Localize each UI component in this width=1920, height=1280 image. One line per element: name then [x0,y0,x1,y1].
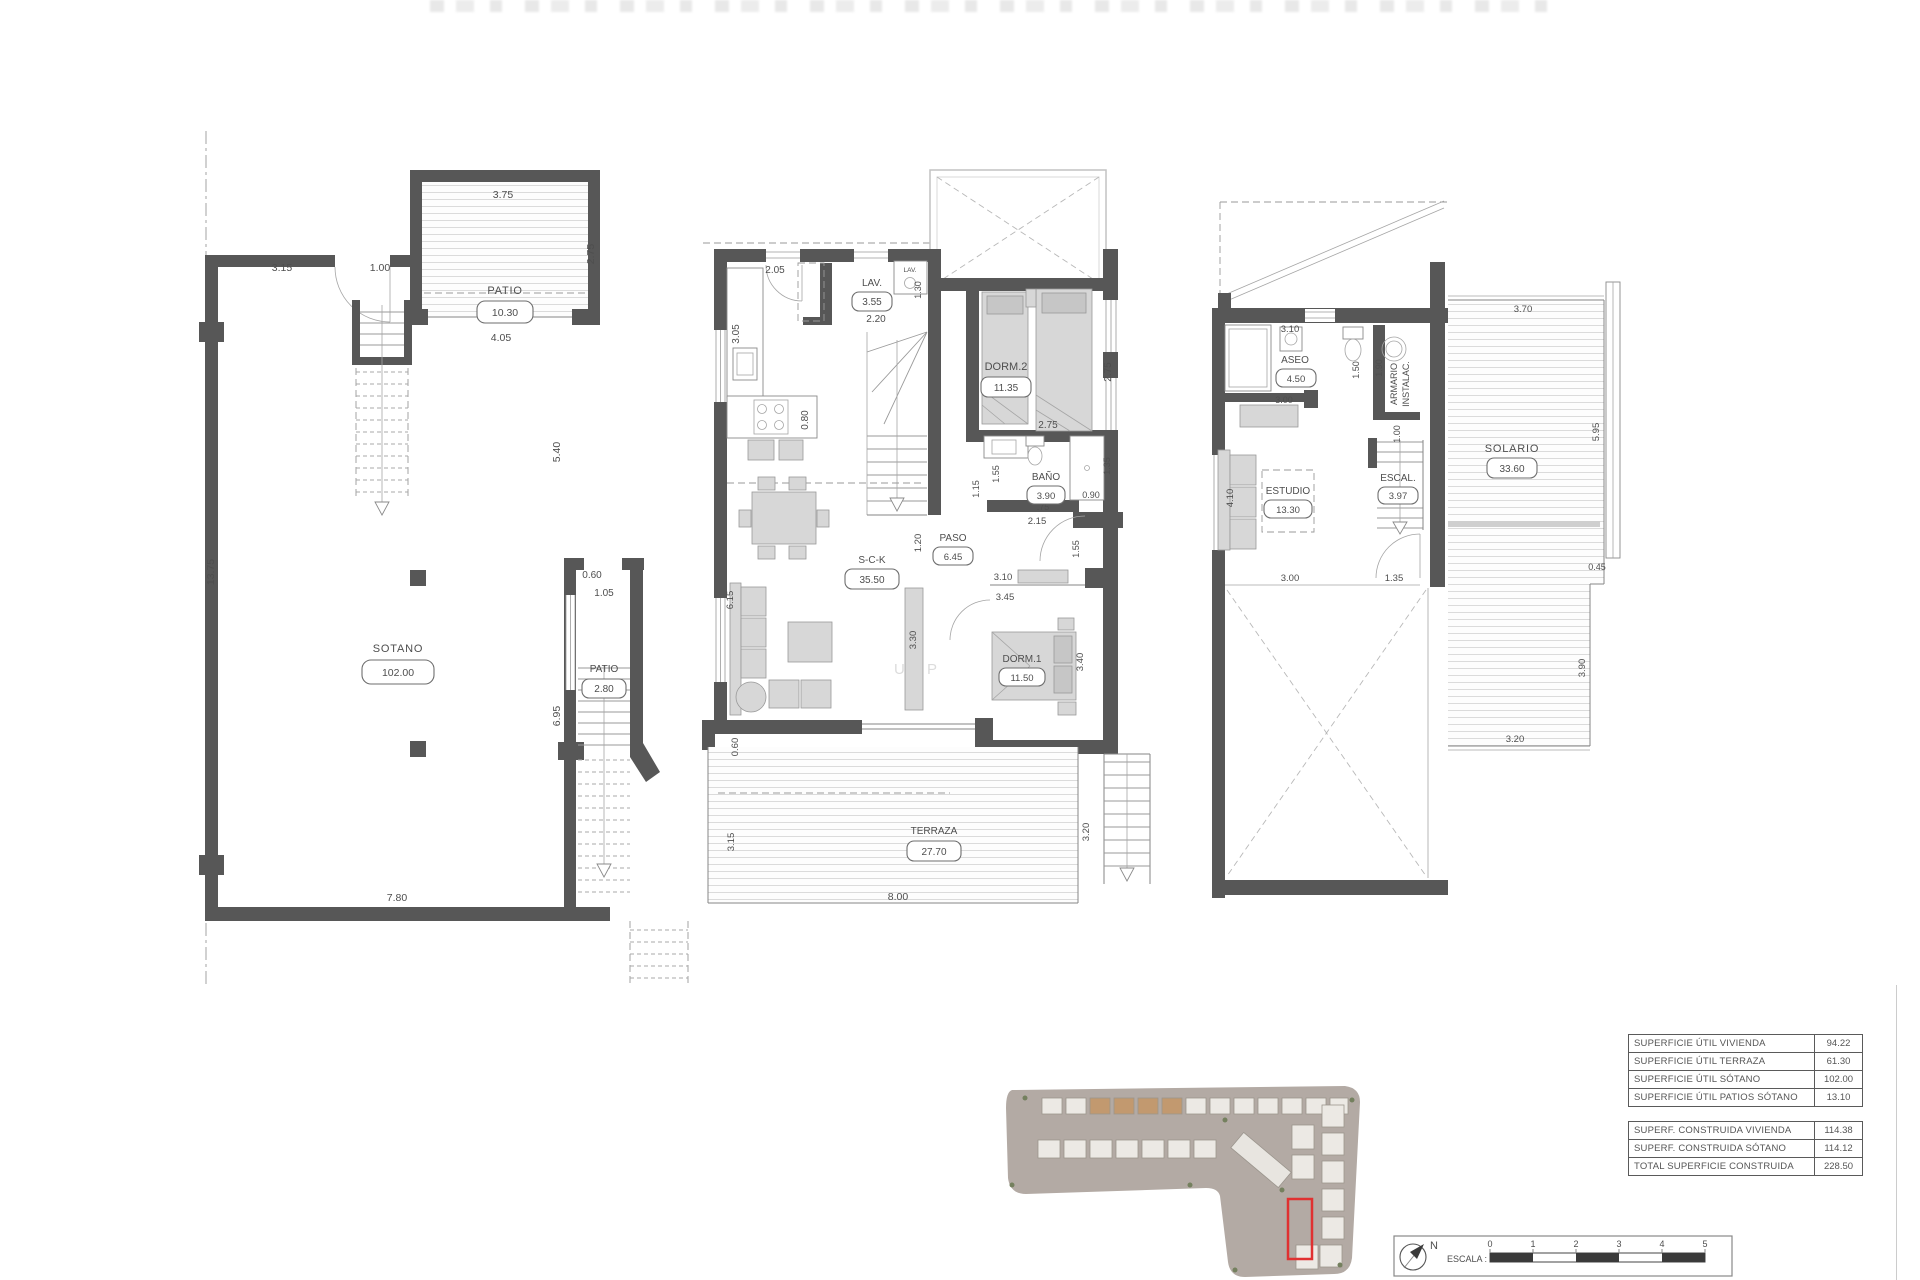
table-row: SUPERF. CONSTRUIDA VIVIENDA114.38 [1629,1122,1862,1140]
north-label: N [1430,1240,1438,1252]
room-label: TERRAZA [911,826,958,837]
desk [1240,405,1298,427]
table-cell-value: 61.30 [1814,1053,1862,1070]
dim-label: 3.15 [272,262,293,274]
table-row: SUPERF. CONSTRUIDA SÓTANO114.12 [1629,1140,1862,1158]
room-label: PASO [939,533,966,544]
table-cell-value: 228.50 [1814,1158,1862,1175]
dim-label: 3.10 [1281,324,1300,335]
table-cell-label: SUPERFICIE ÚTIL SÓTANO [1629,1074,1814,1085]
dim-label: 3.30 [908,631,919,650]
scale-label: ESCALA : [1447,1254,1487,1264]
dim-label: 3.20 [1081,823,1092,842]
room-label: ASEO [1281,355,1309,366]
dim-label: 2.75 [1038,420,1058,431]
dim-label: 2.20 [866,314,886,325]
dim-label: 2.75 [585,244,597,265]
dim-label: 4.10 [1225,489,1236,508]
sheet-border-line [1896,985,1897,1280]
escal-stair [1376,440,1423,578]
drawing-sheet: 3.75 2.75 PATIO 10.30 4.05 3.15 1.00 13.… [0,0,1920,1280]
table-cell-label: SUPERFICIE ÚTIL TERRAZA [1629,1056,1814,1067]
dim-label: 1.30 [913,281,923,299]
dim-label: 3.45 [996,592,1015,603]
area-value: 3.97 [1389,491,1408,502]
dim-label: 3.10 [994,572,1013,583]
table-cell-value: 114.38 [1814,1122,1862,1139]
table-row: SUPERFICIE ÚTIL TERRAZA61.30 [1629,1053,1862,1071]
scale-tick: 5 [1702,1239,1707,1249]
dim-label: 3.75 [493,189,514,201]
dim-label: 1.15 [971,480,981,498]
dim-label: 0.80 [800,410,811,430]
area-value: 27.70 [921,847,946,858]
room-label: ARMARIO [1389,363,1399,405]
living-furniture [727,477,925,715]
room-label: S-C-K [858,555,886,566]
area-value: 3.90 [1037,491,1056,502]
dim-label: 13.75 [205,559,217,585]
room-label: LAV. [862,278,882,289]
dim-label: 1.90 [1374,359,1384,377]
area-table-construida: SUPERF. CONSTRUIDA VIVIENDA114.38 SUPERF… [1628,1121,1863,1176]
table-row: SUPERFICIE ÚTIL VIVIENDA94.22 [1629,1035,1862,1053]
area-value: 35.50 [859,575,884,586]
estudio-furniture [1218,450,1420,585]
scale-bar-box: N ESCALA : 0 1 2 3 4 5 [1394,1236,1732,1276]
room-label: DORM.2 [985,361,1028,373]
roof-void [930,170,1106,290]
room-label: BAÑO [1032,470,1061,483]
dim-label: 8.00 [888,891,909,903]
dim-label: 7.80 [387,892,408,904]
room-label: ESCAL. [1380,473,1416,484]
table-row: SUPERFICIE ÚTIL SÓTANO102.00 [1629,1071,1862,1089]
watermark: U P [894,661,946,678]
dorm2-furniture [982,289,1092,431]
dim-label: 0.60 [730,738,741,757]
table-cell-value: 94.22 [1814,1035,1862,1052]
dim-label: 0.60 [582,570,602,581]
dim-label: 3.00 [1275,395,1293,405]
dim-label: 1.00 [370,262,391,274]
site-plan [1006,1086,1360,1277]
dim-label: 3.00 [1281,573,1300,584]
room-label: SOTANO [373,643,423,655]
north-compass-icon [1400,1244,1426,1270]
table-cell-value: 114.12 [1814,1140,1862,1157]
double-height-void [1227,588,1428,878]
dim-label: 5.95 [1591,423,1602,442]
room-label: PATIO [487,285,522,297]
dim-label: 1.00 [1392,425,1402,443]
plan-planta-baja: LAV. [702,170,1150,903]
table-row: TOTAL SUPERFICIE CONSTRUIDA228.50 [1629,1158,1862,1175]
terraza [708,747,1078,903]
roof-slope [1218,201,1448,309]
scale-tick: 3 [1616,1239,1621,1249]
table-cell-value: 102.00 [1814,1071,1862,1088]
column [410,741,426,757]
room-label: INSTALAC. [1401,361,1411,407]
table-cell-label: SUPERFICIE ÚTIL PATIOS SÓTANO [1629,1092,1814,1103]
area-value: 11.35 [994,383,1019,394]
scale-tick: 4 [1659,1239,1664,1249]
sotano-stair-top [352,300,412,515]
dim-label: 3.70 [1514,304,1533,315]
door-arc [1376,534,1420,578]
table-row: SUPERFICIE ÚTIL PATIOS SÓTANO13.10 [1629,1089,1862,1106]
cropped-print-artifact [430,0,1560,12]
room-label: DORM.1 [1003,654,1042,665]
solario [1448,282,1620,750]
stair-winder [867,332,927,515]
dim-label: 2.75 [1103,362,1114,382]
table-cell-label: SUPERF. CONSTRUIDA SÓTANO [1629,1143,1814,1154]
column [410,570,426,586]
dim-label: 0.90 [1082,490,1100,500]
room-label: SOLARIO [1485,443,1540,455]
area-value: 6.45 [944,552,963,563]
external-stair [1104,754,1150,884]
dim-label: 6.15 [725,591,736,610]
dim-label: 1.35 [1102,457,1112,475]
dim-label: 1.20 [913,534,924,553]
dim-label: 3.05 [731,324,742,344]
patio-side-strip [558,558,688,986]
dim-label: 1.50 [1351,361,1361,379]
area-value: 4.50 [1287,374,1306,385]
appliance-label: LAV. [903,267,916,274]
scale-tick: 1 [1530,1239,1535,1249]
dim-label: 5.40 [551,442,563,463]
area-value: 11.50 [1010,673,1033,684]
scale-tick: 2 [1573,1239,1578,1249]
dim-label: 3.20 [1506,734,1525,745]
dim-label: 2.15 [1028,516,1047,527]
table-cell-value: 13.10 [1814,1089,1862,1106]
scale-tick: 0 [1487,1239,1492,1249]
dim-label: 3.40 [1075,653,1086,672]
table-cell-label: SUPERFICIE ÚTIL VIVIENDA [1629,1038,1814,1049]
dim-label: 0.45 [1588,562,1606,572]
area-value: 3.55 [862,297,882,308]
dim-label: 4.05 [491,332,512,344]
table-cell-label: SUPERF. CONSTRUIDA VIVIENDA [1629,1125,1814,1136]
plan-planta-alta: 3.10 ASEO 4.50 1.50 1.90 ARMARIO INSTALA… [1212,201,1620,898]
area-value: 2.80 [594,684,614,695]
plan-sotano: 3.75 2.75 PATIO 10.30 4.05 3.15 1.00 13.… [199,131,688,988]
dim-label: 2.05 [765,265,785,276]
dim-label: 1.55 [991,465,1001,483]
dim-label: 1.35 [1385,573,1404,584]
dim-label: 3.15 [726,833,737,852]
dim-label: 1.55 [1071,540,1081,558]
table-cell-label: TOTAL SUPERFICIE CONSTRUIDA [1629,1161,1814,1172]
room-label: PATIO [590,664,619,675]
area-table-util: SUPERFICIE ÚTIL VIVIENDA94.22 SUPERFICIE… [1628,1034,1863,1107]
door-arc [950,600,990,640]
dim-label: 1.05 [594,588,614,599]
room-label: ESTUDIO [1266,486,1311,497]
area-value: 13.30 [1276,505,1300,516]
area-value: 10.30 [492,307,518,319]
area-value: 102.00 [382,667,414,679]
dim-label: 6.95 [551,706,563,727]
dim-label: 3.90 [1577,659,1588,678]
area-value: 33.60 [1499,464,1524,475]
